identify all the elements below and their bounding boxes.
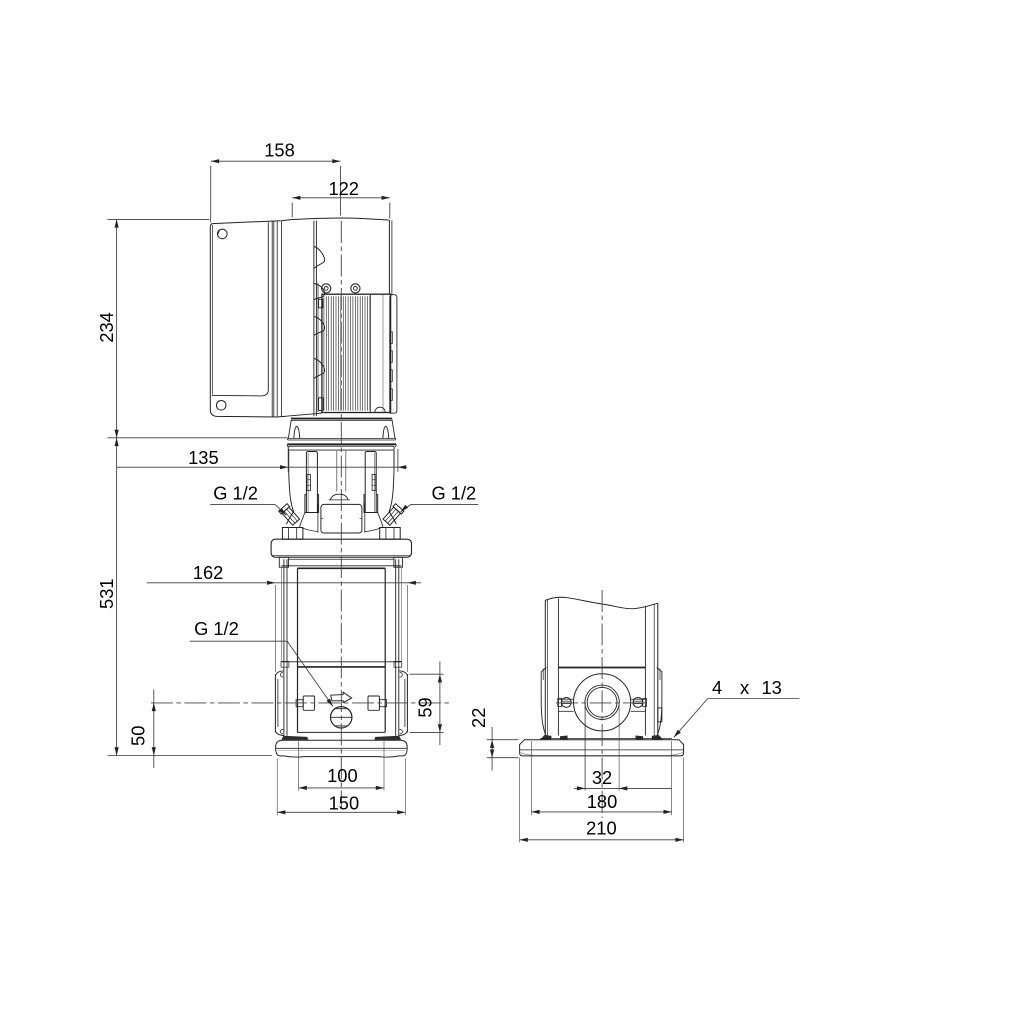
svg-text:22: 22 (468, 708, 489, 728)
svg-text:100: 100 (327, 765, 358, 786)
svg-text:210: 210 (586, 817, 617, 838)
svg-text:180: 180 (587, 791, 618, 812)
svg-text:50: 50 (128, 726, 149, 746)
svg-text:122: 122 (328, 178, 359, 199)
svg-text:x: x (740, 677, 749, 698)
svg-text:13: 13 (762, 677, 782, 698)
svg-text:32: 32 (592, 767, 612, 788)
svg-text:531: 531 (96, 578, 117, 609)
svg-text:158: 158 (264, 139, 295, 160)
svg-text:4: 4 (712, 677, 722, 698)
svg-text:59: 59 (415, 697, 436, 717)
svg-text:G 1/2: G 1/2 (194, 618, 239, 639)
svg-text:234: 234 (96, 312, 117, 343)
svg-text:150: 150 (329, 793, 360, 814)
svg-text:G 1/2: G 1/2 (213, 483, 258, 504)
svg-text:162: 162 (193, 562, 224, 583)
svg-text:135: 135 (188, 447, 219, 468)
svg-text:G 1/2: G 1/2 (432, 483, 477, 504)
